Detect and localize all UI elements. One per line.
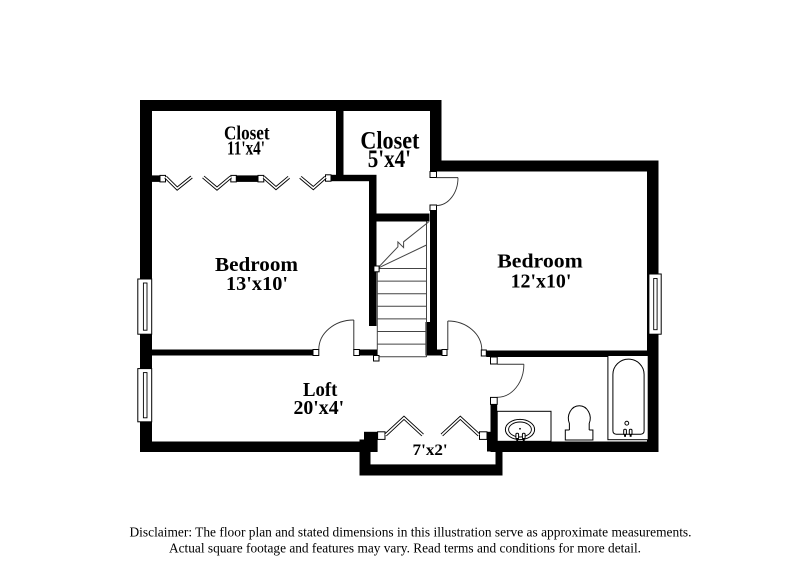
svg-text:Actual square footage and feat: Actual square footage and features may v… xyxy=(169,541,641,556)
svg-text:11'x4': 11'x4' xyxy=(227,138,265,160)
svg-text:12'x10': 12'x10' xyxy=(511,271,572,293)
svg-text:7'x2': 7'x2' xyxy=(413,442,448,459)
svg-text:13'x10': 13'x10' xyxy=(226,273,288,295)
svg-text:20'x4': 20'x4' xyxy=(294,397,345,419)
svg-text:5'x4': 5'x4' xyxy=(368,146,411,173)
svg-text:Bedroom: Bedroom xyxy=(497,251,583,273)
svg-text:Disclaimer: The floor plan and: Disclaimer: The floor plan and stated di… xyxy=(130,525,692,540)
